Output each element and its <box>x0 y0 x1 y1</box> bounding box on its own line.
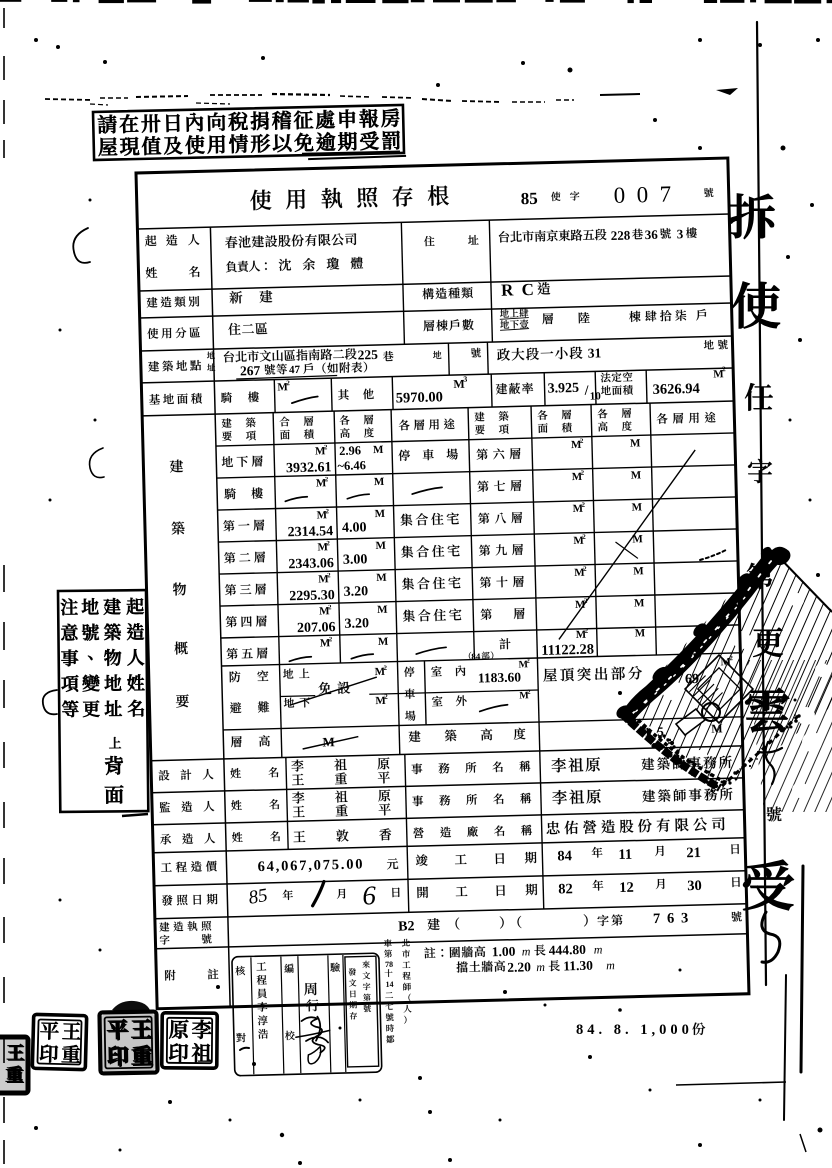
svg-text:M: M <box>711 721 723 735</box>
svg-text:225: 225 <box>357 347 378 363</box>
svg-text:2314.54: 2314.54 <box>287 524 333 540</box>
svg-text:64,067,075.00: 64,067,075.00 <box>257 856 364 875</box>
svg-text:84. 8. 1,000: 84. 8. 1,000 <box>576 1022 693 1038</box>
svg-text:10: 10 <box>590 390 602 402</box>
svg-text:m: m <box>594 942 603 956</box>
svg-text:82: 82 <box>558 881 573 897</box>
svg-text:1: 1 <box>644 724 651 739</box>
svg-text:1.00: 1.00 <box>492 944 516 960</box>
svg-text:M: M <box>635 627 646 639</box>
svg-text:1183.60: 1183.60 <box>478 669 522 685</box>
svg-text:3.00: 3.00 <box>343 552 368 568</box>
svg-text:2: 2 <box>286 379 290 387</box>
svg-text:B2: B2 <box>398 919 415 934</box>
svg-text:11122.28: 11122.28 <box>541 642 594 659</box>
svg-text:0: 0 <box>636 182 648 207</box>
svg-text:3: 3 <box>463 375 467 384</box>
svg-text:M: M <box>633 565 644 577</box>
svg-text:30: 30 <box>687 878 702 894</box>
svg-text:47: 47 <box>289 364 301 376</box>
svg-text:M: M <box>374 476 385 488</box>
svg-text:5: 5 <box>657 724 664 739</box>
svg-text:14: 14 <box>385 980 393 989</box>
svg-text:267: 267 <box>240 363 261 379</box>
svg-text:2: 2 <box>581 470 585 477</box>
svg-text:6: 6 <box>667 911 675 927</box>
svg-text:69: 69 <box>685 672 699 687</box>
svg-text:7: 7 <box>653 911 661 927</box>
svg-text:36: 36 <box>645 227 659 242</box>
svg-text:3: 3 <box>681 910 689 926</box>
svg-text:207.06: 207.06 <box>297 620 336 636</box>
svg-text:M: M <box>373 444 384 456</box>
svg-text:3: 3 <box>677 226 684 241</box>
svg-text:84: 84 <box>471 651 481 661</box>
svg-text:2: 2 <box>326 508 330 515</box>
svg-text:2.96: 2.96 <box>339 443 361 458</box>
svg-text:M: M <box>376 572 387 584</box>
svg-text:11.30: 11.30 <box>563 958 593 974</box>
svg-text:2: 2 <box>327 572 331 579</box>
svg-text:~6.46: ~6.46 <box>337 458 366 473</box>
svg-text:3626.94: 3626.94 <box>652 381 700 398</box>
svg-text:M: M <box>631 469 642 481</box>
svg-text:2: 2 <box>326 540 330 547</box>
svg-text:M: M <box>631 501 642 513</box>
svg-text:2: 2 <box>324 444 328 451</box>
svg-text:78: 78 <box>385 960 393 969</box>
svg-text:2: 2 <box>582 534 586 541</box>
svg-text:M: M <box>377 604 388 616</box>
svg-text:3.20: 3.20 <box>344 616 369 632</box>
svg-text:31: 31 <box>588 345 602 360</box>
svg-text:2: 2 <box>329 636 333 643</box>
svg-text:M: M <box>375 540 386 552</box>
svg-text:M: M <box>630 437 641 449</box>
svg-text:2.20: 2.20 <box>507 959 531 975</box>
svg-text:11: 11 <box>618 847 632 863</box>
svg-text:m: m <box>606 958 615 972</box>
svg-text:444.80: 444.80 <box>549 942 587 958</box>
svg-text:M: M <box>634 597 645 609</box>
svg-text:2343.06: 2343.06 <box>288 556 334 572</box>
svg-text:2: 2 <box>722 365 726 373</box>
svg-text:m: m <box>522 944 531 958</box>
svg-text:2: 2 <box>527 658 530 665</box>
svg-text:12: 12 <box>619 880 634 896</box>
svg-text:2: 2 <box>580 438 584 445</box>
svg-text:0: 0 <box>613 183 625 208</box>
svg-text:3932.61: 3932.61 <box>286 460 332 476</box>
svg-text:3.925: 3.925 <box>547 381 579 397</box>
svg-text:m: m <box>536 960 545 974</box>
svg-text:85: 85 <box>247 885 269 909</box>
svg-text:2: 2 <box>328 604 332 611</box>
svg-text:2: 2 <box>583 566 587 573</box>
svg-text:2: 2 <box>581 502 585 509</box>
svg-text:84: 84 <box>557 848 572 864</box>
svg-text:2: 2 <box>325 476 329 483</box>
svg-text:7: 7 <box>659 181 671 206</box>
svg-text:85: 85 <box>521 189 538 208</box>
svg-text:2: 2 <box>384 665 388 672</box>
svg-text:M: M <box>378 636 389 648</box>
svg-text:R C: R C <box>501 280 536 300</box>
svg-text:2295.30: 2295.30 <box>289 588 335 604</box>
svg-text:2: 2 <box>729 655 733 662</box>
svg-text:2: 2 <box>527 689 530 696</box>
svg-text:2: 2 <box>384 694 388 701</box>
svg-text:4.00: 4.00 <box>342 520 367 536</box>
svg-text:6: 6 <box>362 880 377 910</box>
svg-text:21: 21 <box>686 845 701 861</box>
svg-text:3.20: 3.20 <box>343 584 368 600</box>
svg-text:5970.00: 5970.00 <box>396 389 444 406</box>
svg-text:228: 228 <box>611 228 631 244</box>
svg-text:M: M <box>375 508 386 520</box>
